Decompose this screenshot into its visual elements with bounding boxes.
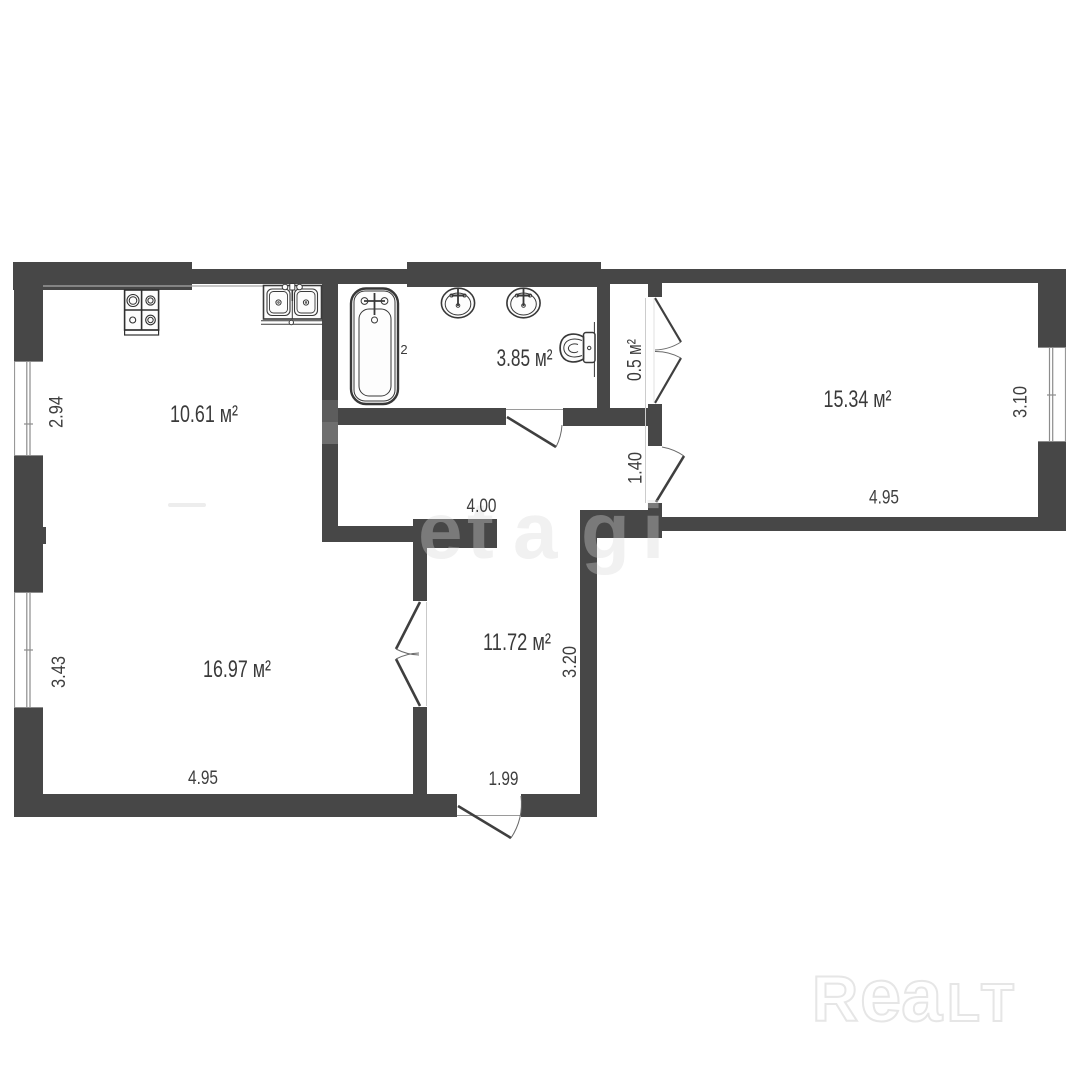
svg-text:0.5 м²: 0.5 м²: [624, 339, 646, 381]
svg-text:4.00: 4.00: [467, 496, 497, 517]
svg-text:3.10: 3.10: [1011, 386, 1032, 418]
svg-text:10.61 м²: 10.61 м²: [170, 401, 238, 428]
svg-text:3.43: 3.43: [49, 656, 70, 688]
svg-text:etagi: etagi: [418, 486, 664, 575]
svg-text:LT: LT: [947, 973, 1019, 1033]
svg-text:1.99: 1.99: [489, 769, 519, 790]
svg-text:2.94: 2.94: [47, 396, 68, 428]
svg-text:11.72 м²: 11.72 м²: [483, 629, 551, 656]
svg-text:1.40: 1.40: [626, 452, 647, 484]
svg-text:2: 2: [400, 342, 407, 357]
svg-text:4.95: 4.95: [188, 768, 218, 789]
svg-text:15.34 м²: 15.34 м²: [824, 386, 892, 413]
svg-text:3.85 м²: 3.85 м²: [497, 345, 553, 372]
svg-text:ea: ea: [860, 954, 943, 1037]
svg-text:3.20: 3.20: [560, 646, 581, 678]
svg-text:4.95: 4.95: [869, 488, 899, 509]
svg-text:R: R: [812, 963, 858, 1035]
svg-text:16.97 м²: 16.97 м²: [203, 656, 271, 683]
